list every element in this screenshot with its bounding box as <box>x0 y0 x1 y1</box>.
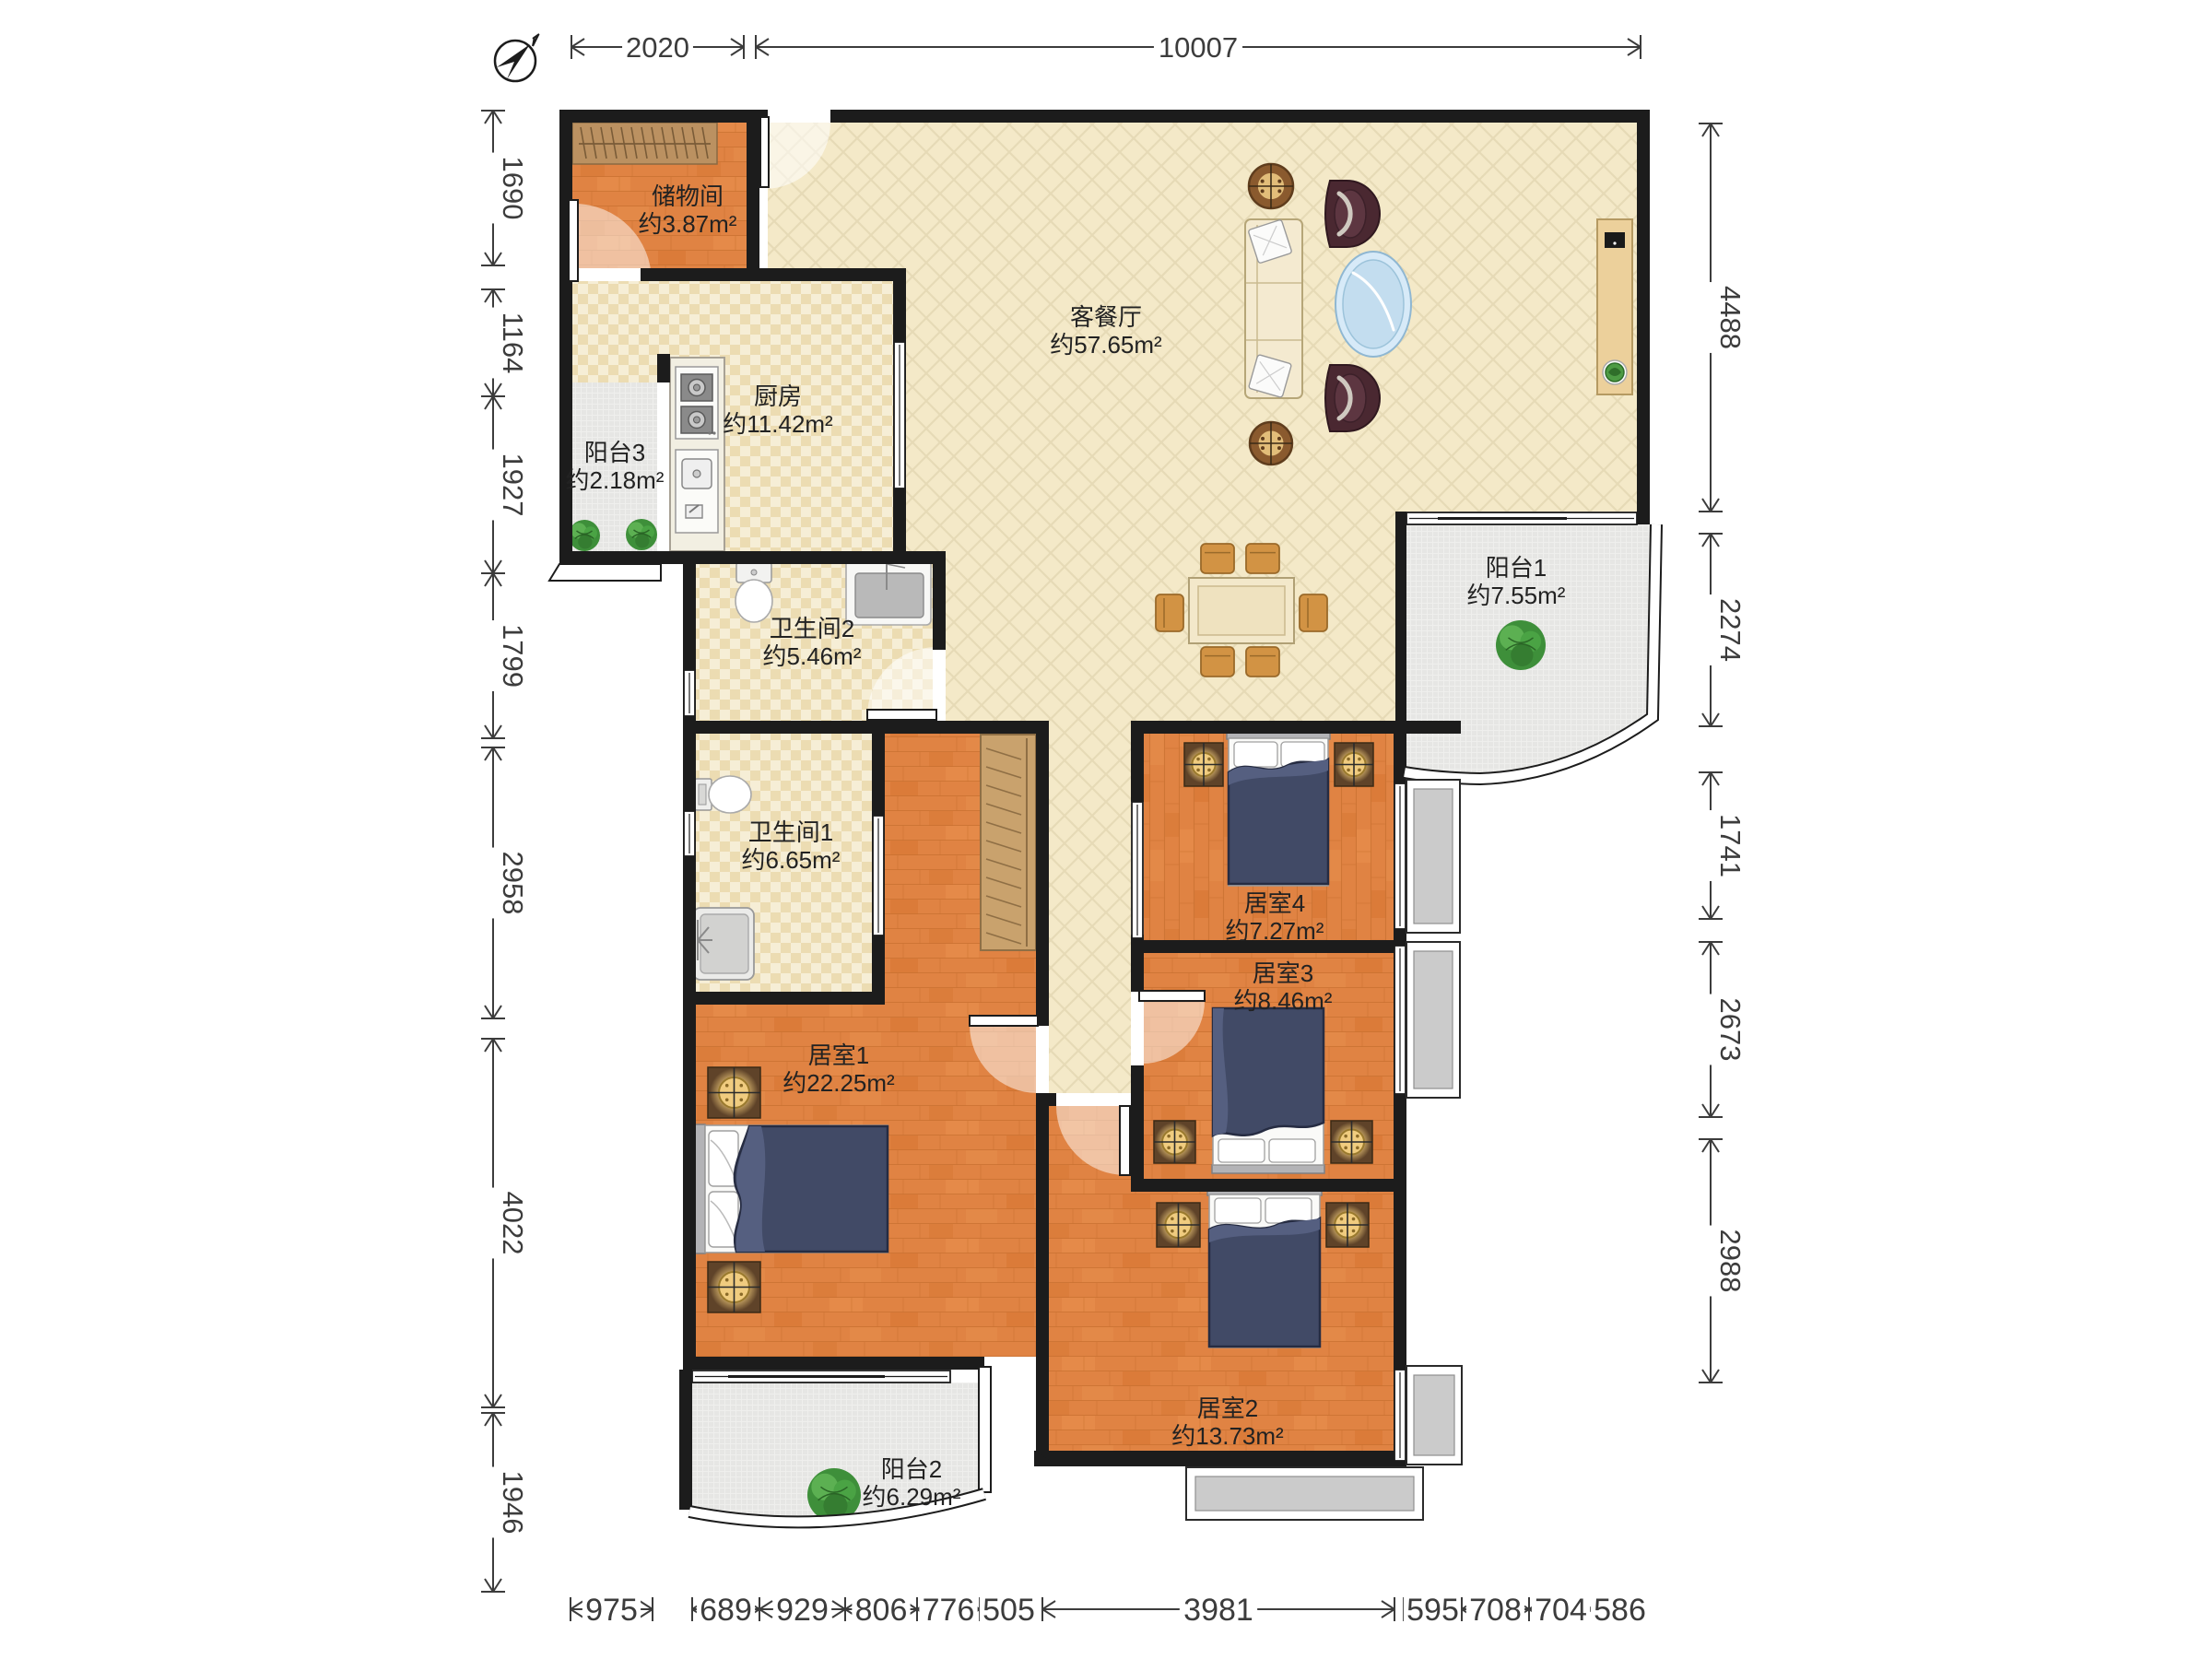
svg-text:1164: 1164 <box>497 312 529 374</box>
svg-text:居室2: 居室2 <box>1197 1394 1258 1422</box>
svg-text:客餐厅: 客餐厅 <box>1070 303 1142 331</box>
svg-text:阳台2: 阳台2 <box>881 1455 942 1483</box>
svg-text:阳台3: 阳台3 <box>584 439 645 466</box>
svg-text:4022: 4022 <box>497 1192 529 1255</box>
svg-text:2673: 2673 <box>1714 998 1747 1062</box>
svg-text:505: 505 <box>982 1593 1035 1628</box>
svg-text:1741: 1741 <box>1714 814 1747 877</box>
svg-text:卫生间2: 卫生间2 <box>770 615 854 642</box>
svg-text:1690: 1690 <box>497 157 529 220</box>
svg-text:689: 689 <box>700 1593 752 1628</box>
svg-text:10007: 10007 <box>1159 31 1238 64</box>
svg-text:586: 586 <box>1594 1593 1646 1628</box>
svg-text:约7.27m²: 约7.27m² <box>1226 917 1324 945</box>
svg-text:居室3: 居室3 <box>1253 959 1313 987</box>
svg-text:1946: 1946 <box>497 1471 529 1535</box>
svg-text:约2.18m²: 约2.18m² <box>566 466 665 494</box>
svg-text:卫生间1: 卫生间1 <box>748 818 833 846</box>
svg-text:3981: 3981 <box>1183 1593 1253 1628</box>
svg-text:储物间: 储物间 <box>652 182 724 210</box>
svg-text:708: 708 <box>1469 1593 1522 1628</box>
svg-text:约11.42m²: 约11.42m² <box>723 410 833 438</box>
svg-text:约13.73m²: 约13.73m² <box>1171 1422 1284 1450</box>
svg-text:约6.29m²: 约6.29m² <box>863 1483 961 1511</box>
svg-text:约22.25m²: 约22.25m² <box>782 1069 895 1097</box>
svg-text:4488: 4488 <box>1714 286 1747 349</box>
svg-text:居室1: 居室1 <box>808 1041 869 1069</box>
svg-text:约7.55m²: 约7.55m² <box>1467 582 1566 609</box>
svg-text:约3.87m²: 约3.87m² <box>639 210 737 238</box>
svg-text:2274: 2274 <box>1714 598 1747 662</box>
svg-text:595: 595 <box>1406 1593 1459 1628</box>
svg-text:776: 776 <box>923 1593 975 1628</box>
svg-text:1799: 1799 <box>497 624 529 688</box>
svg-text:约6.65m²: 约6.65m² <box>742 846 841 874</box>
svg-text:2020: 2020 <box>626 31 689 64</box>
svg-text:806: 806 <box>855 1593 908 1628</box>
svg-text:929: 929 <box>776 1593 829 1628</box>
svg-text:2988: 2988 <box>1714 1230 1747 1293</box>
svg-text:阳台1: 阳台1 <box>1486 554 1547 582</box>
svg-text:约8.46m²: 约8.46m² <box>1234 987 1333 1015</box>
svg-text:约57.65m²: 约57.65m² <box>1050 331 1162 359</box>
svg-text:975: 975 <box>585 1593 638 1628</box>
svg-text:1927: 1927 <box>497 453 529 517</box>
svg-text:厨房: 厨房 <box>754 382 802 410</box>
svg-text:约5.46m²: 约5.46m² <box>763 642 862 670</box>
svg-text:704: 704 <box>1535 1593 1587 1628</box>
svg-text:居室4: 居室4 <box>1244 889 1305 917</box>
svg-text:2958: 2958 <box>497 852 529 915</box>
